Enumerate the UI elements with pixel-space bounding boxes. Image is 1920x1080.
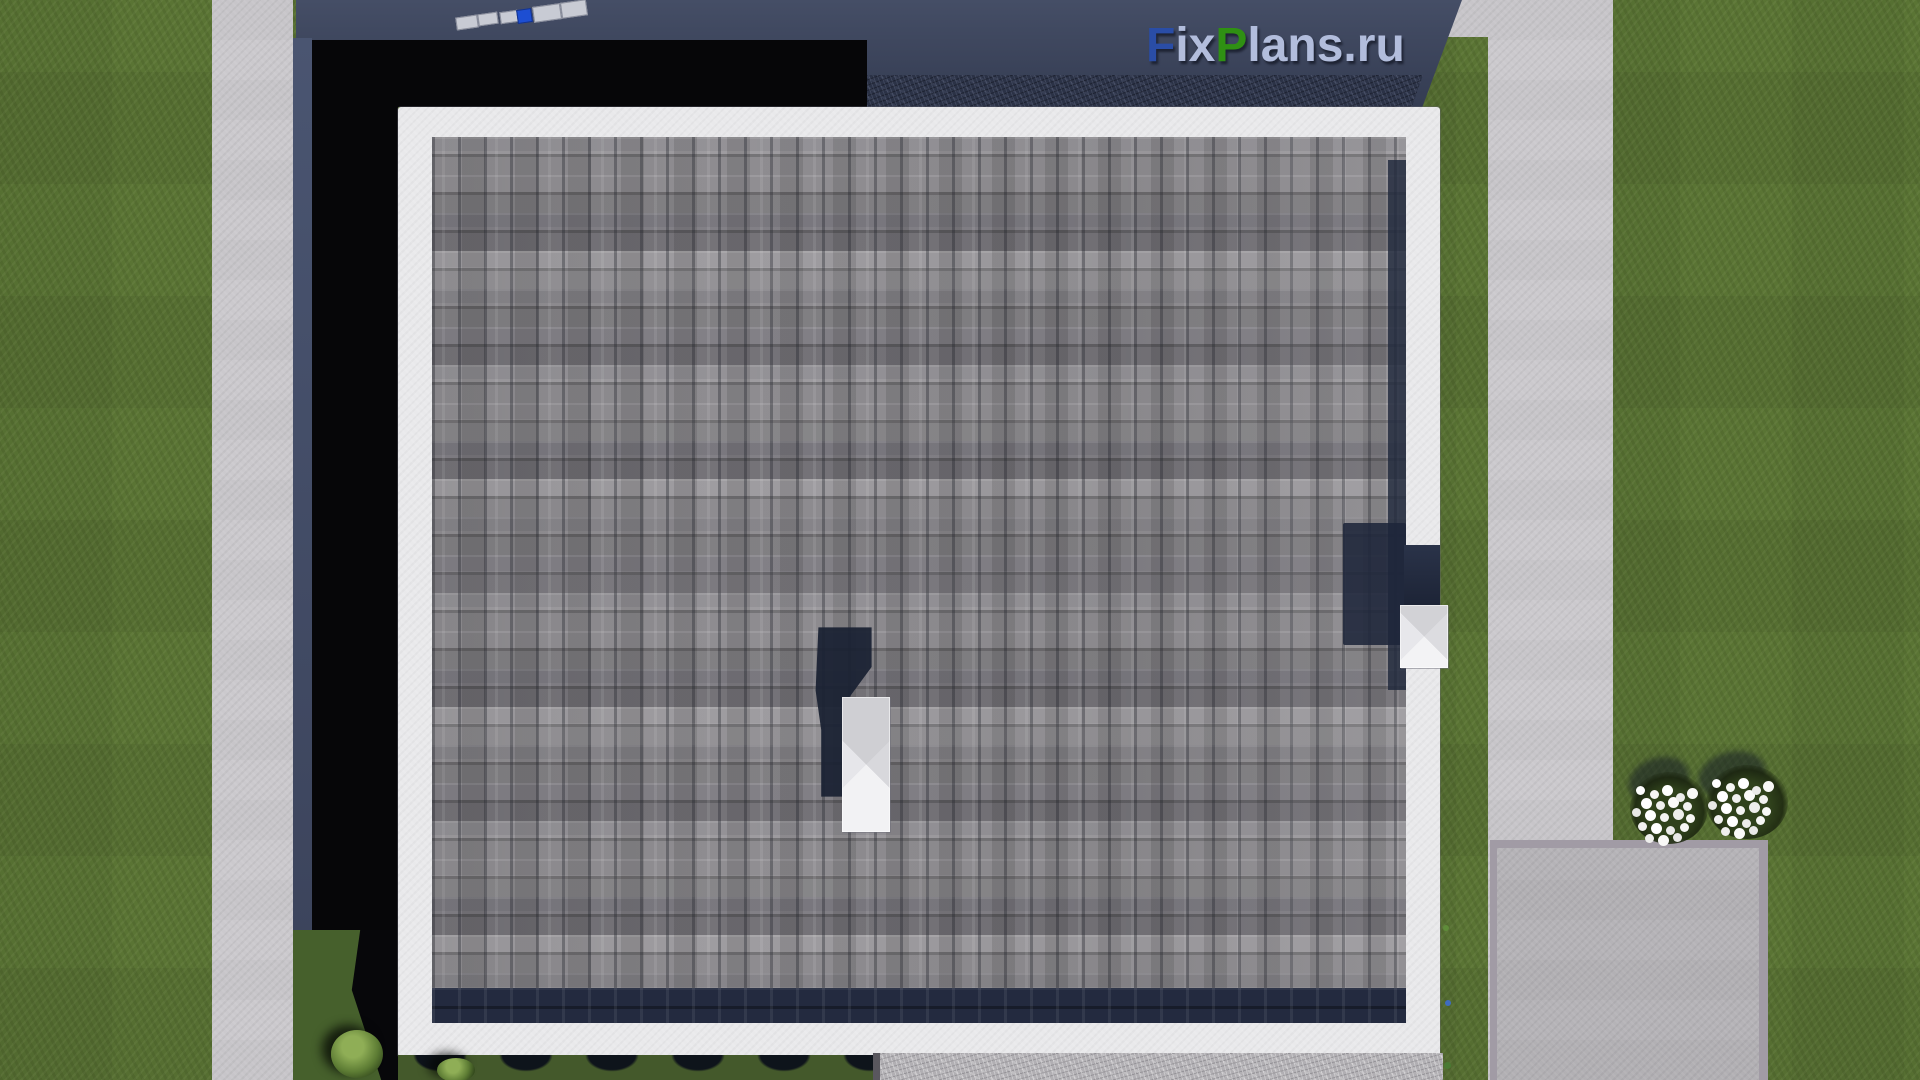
left-walkway xyxy=(212,0,293,1080)
watermark-segment: ix xyxy=(1175,19,1215,72)
roof-vent-cap xyxy=(1400,605,1448,668)
plant-speck xyxy=(1443,925,1449,931)
shadow-transition xyxy=(293,930,398,1080)
bush xyxy=(437,1058,475,1080)
shingle-shading xyxy=(432,137,1406,1023)
watermark-segment: lans xyxy=(1247,19,1343,72)
watermark-segment: .ru xyxy=(1343,19,1404,72)
flower-foliage xyxy=(1630,772,1708,844)
chimney xyxy=(842,697,890,832)
plant-speck xyxy=(1444,1062,1451,1069)
flower-cluster xyxy=(1712,779,1721,788)
lower-eave-shadow-row xyxy=(432,988,1406,1023)
roof-shadow-patch xyxy=(1343,523,1406,645)
flower-cluster xyxy=(1636,786,1645,795)
shadow-texture-strip xyxy=(867,75,1423,107)
skylight-dark xyxy=(1404,545,1440,605)
patio-pad xyxy=(1490,840,1768,1080)
gravel-strip xyxy=(880,1053,1443,1080)
shadow-edge-strip xyxy=(293,38,312,950)
watermark-segment: F xyxy=(1146,19,1175,72)
bush xyxy=(331,1030,383,1078)
plant-speck xyxy=(1445,1000,1451,1006)
gravel-edge-line xyxy=(873,1053,880,1080)
watermark-segment: P xyxy=(1215,19,1247,72)
deep-shadow-left xyxy=(312,40,398,930)
flower-foliage xyxy=(1706,765,1788,839)
solar-panel-blue xyxy=(516,8,533,24)
aerial-roof-render: FixPlans.ru xyxy=(0,0,1920,1080)
watermark-logo: FixPlans.ru xyxy=(1146,18,1405,73)
